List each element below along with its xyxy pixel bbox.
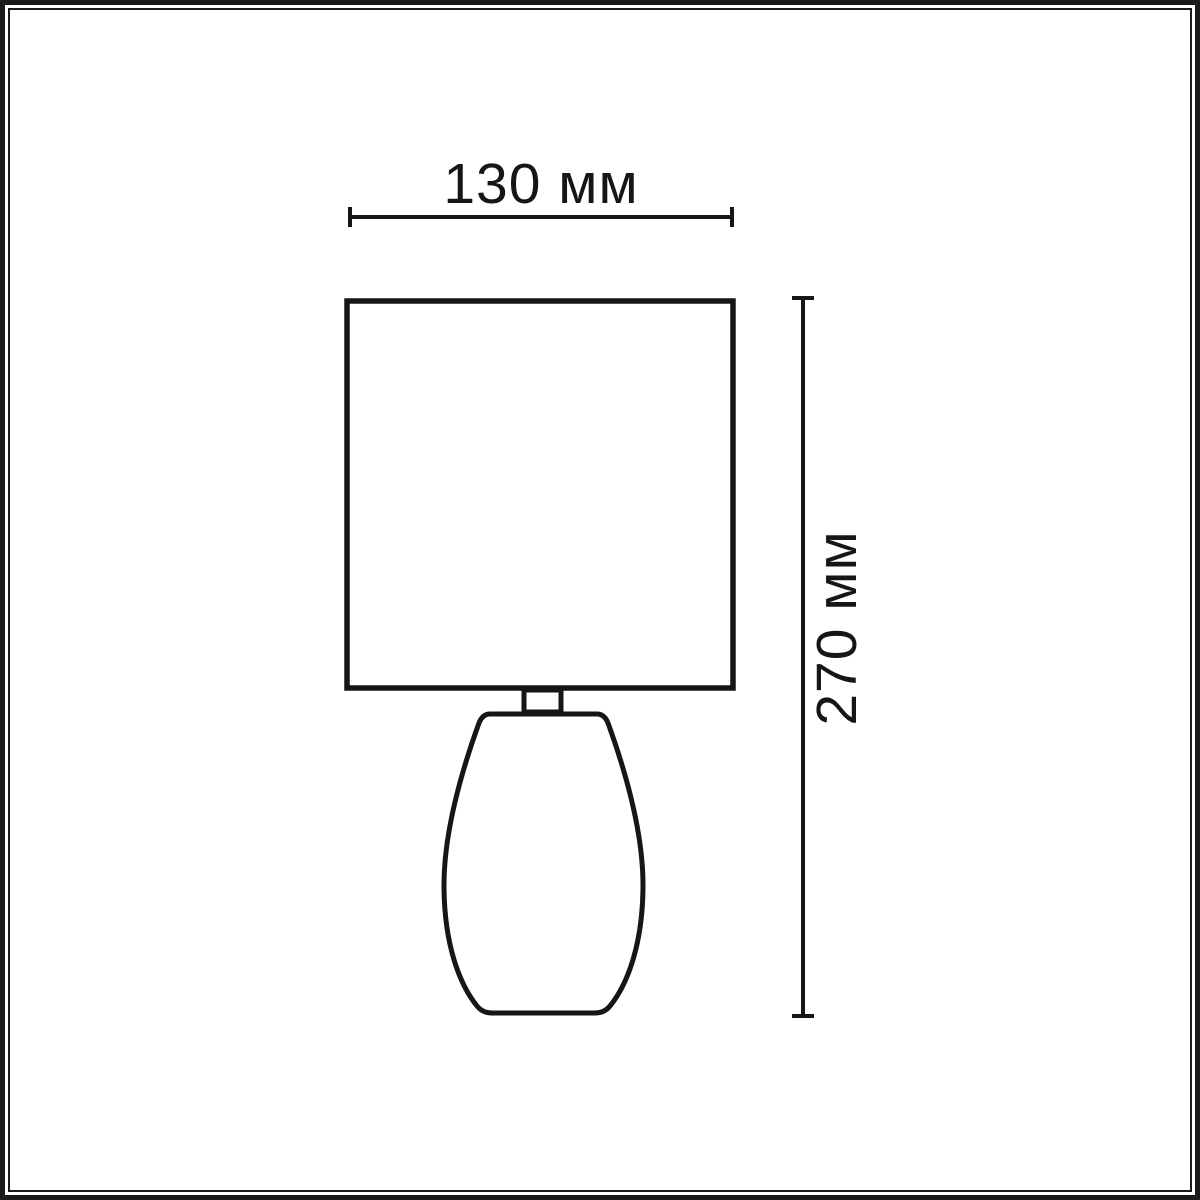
- lamp-shade: [347, 301, 733, 688]
- diagram-canvas: 130 мм 270 мм: [0, 0, 1200, 1200]
- height-dimension-label: 270 мм: [805, 530, 869, 725]
- lamp-neck: [524, 690, 561, 712]
- lamp-dimension-drawing: 130 мм 270 мм: [0, 0, 1200, 1200]
- lamp-base: [444, 714, 643, 1013]
- width-dimension-label: 130 мм: [443, 152, 638, 216]
